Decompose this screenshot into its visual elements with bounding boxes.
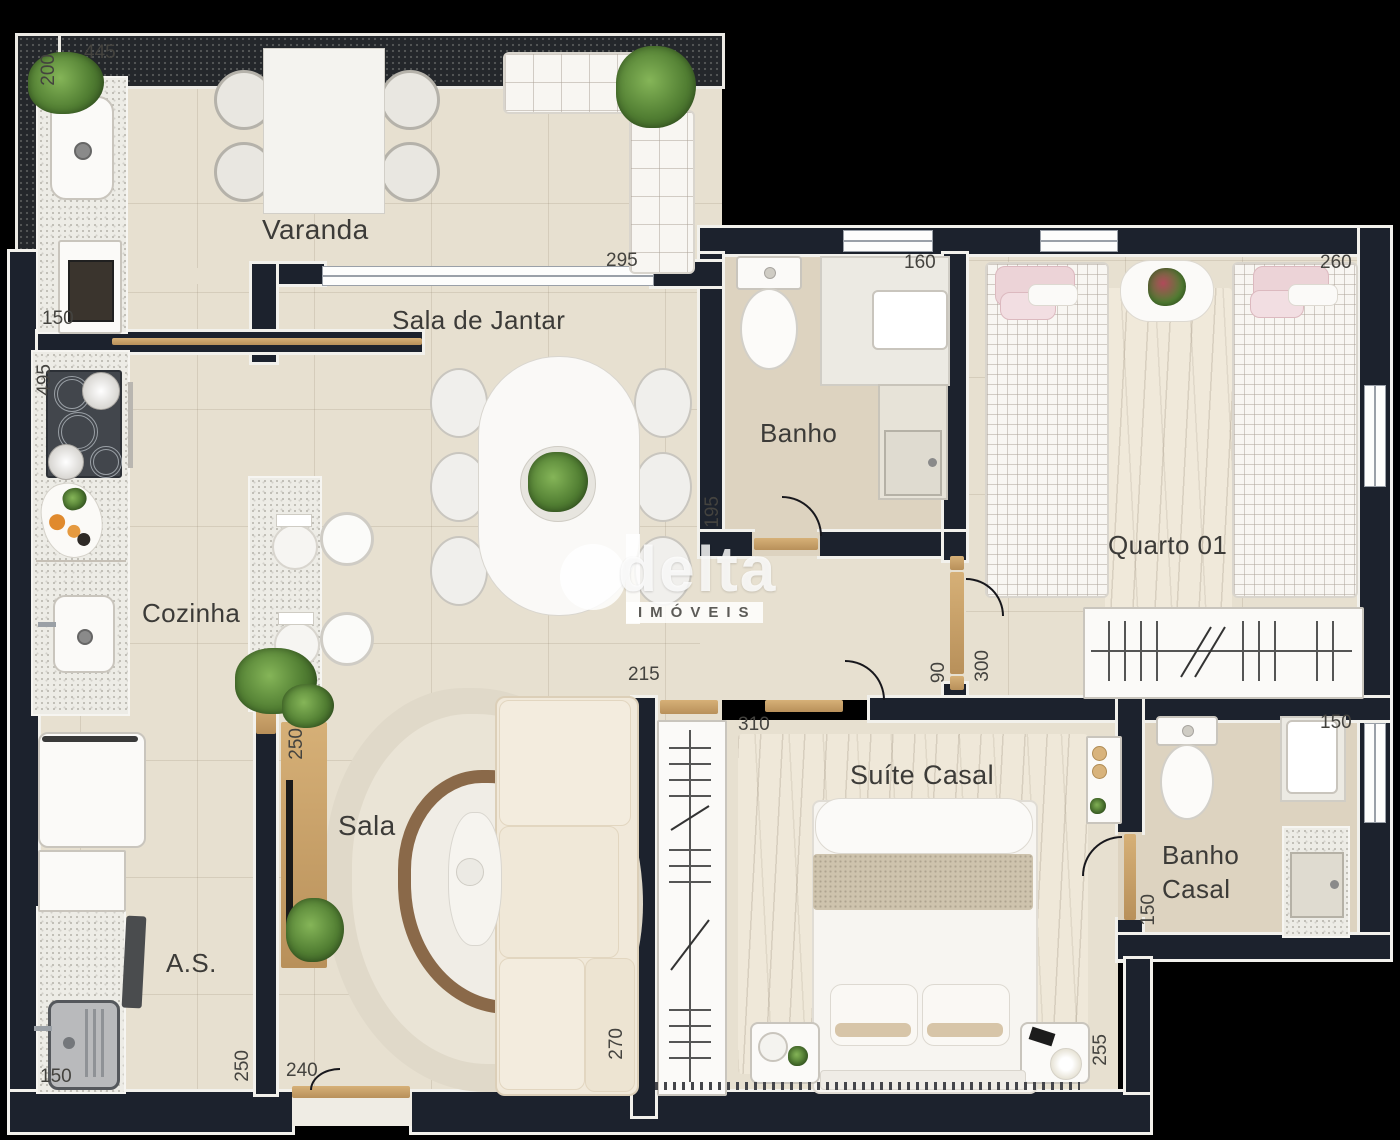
suite-vanity: [1086, 736, 1122, 824]
suite-pillow-stripe: [927, 1023, 1003, 1037]
banho-casal-shower-door: [1290, 852, 1344, 918]
watermark-logo-icon: [560, 544, 626, 610]
varanda-table: [263, 48, 385, 214]
suite-nightstand-left: [750, 1022, 820, 1084]
fruit-dark: [76, 532, 91, 547]
stove-pot: [48, 444, 84, 480]
room-label-cozinha: Cozinha: [142, 598, 240, 629]
gourmet-appliance-door: [68, 260, 114, 322]
banho-casal-toilet-tank: [1156, 716, 1218, 746]
washer-panel: [42, 736, 138, 742]
dim-suite-top: 310: [738, 714, 770, 736]
stove-burner: [90, 446, 122, 478]
gourmet-sink-drain: [74, 142, 92, 160]
sofa-cushion: [499, 826, 619, 958]
dim-hall-width: 90: [928, 662, 950, 683]
banho-casal-wall-bottom: [1118, 935, 1390, 959]
vanity-knob: [1092, 746, 1107, 761]
nightstand-tray: [758, 1032, 788, 1062]
dim-jantar-bottom: 215: [628, 664, 660, 686]
island-stool: [320, 512, 374, 566]
dim-banho-left: 195: [702, 496, 724, 528]
sliding-door-line: [323, 275, 653, 277]
banho-casal-door-leaf: [1124, 834, 1136, 920]
banho-sink: [872, 290, 948, 350]
banho-wall-left: [700, 254, 722, 532]
suite-pillow: [830, 984, 918, 1046]
suite-bed-foot-roll: [815, 798, 1033, 854]
laundry-tank-drain: [63, 1037, 75, 1049]
banho-casal-window-line: [1374, 724, 1376, 822]
kitchen-sink: [53, 595, 115, 673]
island-napkin: [276, 514, 312, 527]
banho-window-line: [844, 240, 932, 242]
fruit-greens: [61, 486, 89, 513]
kitchen-counter-seam: [36, 560, 126, 562]
suite-nightstand-right: [1020, 1022, 1090, 1084]
quarto01-door-jamb-bottom: [950, 676, 964, 690]
dim-kitchen-pass: 150: [42, 308, 74, 330]
quarto01-door-jamb-top: [950, 556, 964, 570]
suite-wardrobe: [657, 720, 727, 1096]
watermark-brand: delta: [618, 532, 777, 606]
vanity-knob: [1092, 764, 1107, 779]
dim-varanda-top: 445: [84, 42, 116, 64]
stove-pot: [82, 372, 120, 410]
varanda-sofa-vertical: [629, 110, 695, 274]
varanda-chair: [380, 70, 440, 130]
quarto01-side-window: [1364, 385, 1386, 487]
dim-varanda-bottom: 295: [606, 250, 638, 272]
sofa-chaise: [585, 958, 635, 1092]
oven-handle: [128, 382, 133, 468]
laundry-cabinet: [38, 850, 126, 912]
quarto01-wardrobe-rail-icon: [1083, 607, 1360, 695]
quarto01-wardrobe: [1083, 607, 1364, 699]
stove: [46, 370, 122, 478]
banho-casal-window: [1364, 723, 1386, 823]
dining-chair: [634, 452, 692, 522]
banho-toilet-tank: [736, 256, 802, 290]
suite-door-leaf: [660, 700, 718, 714]
quarto01-rug: [1105, 288, 1232, 650]
dim-banho-casal-top: 150: [1320, 712, 1352, 734]
room-label-banho: Banho: [760, 418, 837, 449]
servico-sala-divider: [256, 700, 276, 1094]
shower-handle: [1330, 880, 1339, 889]
quarto01-window: [1040, 230, 1118, 252]
dining-chair: [634, 368, 692, 438]
nightstand-phone: [1029, 1027, 1056, 1047]
kitchen-pass-rail: [112, 338, 422, 345]
sala-coffee-table-knob: [456, 858, 484, 886]
suite-door-threshold: [765, 700, 843, 712]
exterior-wall-bottom-left: [10, 1092, 292, 1132]
quarto01-fold-left: [1028, 284, 1078, 306]
room-label-sala: Sala: [338, 810, 396, 842]
kitchen-faucet: [38, 622, 56, 627]
dim-banho-top: 160: [904, 252, 936, 274]
nightstand-flower: [1050, 1048, 1082, 1080]
toilet-button: [1182, 725, 1194, 737]
room-label-banho-casal: Banho Casal: [1162, 838, 1239, 906]
island-napkin: [278, 612, 314, 625]
dim-varanda-left: 200: [38, 54, 60, 86]
suite-pillow-stripe: [835, 1023, 911, 1037]
quarto01-side-window-line: [1374, 386, 1376, 486]
fruit-orange: [48, 513, 67, 532]
room-label-banho-casal-line1: Banho: [1162, 838, 1239, 872]
varanda-chair: [380, 142, 440, 202]
exterior-wall-bottom-right: [412, 1092, 1150, 1132]
laundry-faucet: [34, 1026, 52, 1031]
sofa-cushion: [499, 700, 631, 826]
nightstand-plant: [788, 1046, 808, 1066]
laundry-tank-ridges: [85, 1009, 109, 1077]
toilet-button: [764, 267, 776, 279]
banho-shower-door: [884, 430, 942, 496]
watermark-subtitle: IMÓVEIS: [626, 602, 763, 623]
room-label-quarto01: Quarto 01: [1108, 530, 1227, 561]
floor-plan: Varanda Sala de Jantar Banho Quarto 01 C…: [0, 0, 1400, 1140]
island-stool: [320, 612, 374, 666]
quarto01-door-leaf: [950, 572, 964, 674]
banho-casal-toilet-bowl: [1160, 744, 1214, 820]
shower-handle: [928, 458, 937, 467]
kitchen-sink-drain: [77, 629, 93, 645]
room-label-sala-de-jantar: Sala de Jantar: [392, 305, 565, 336]
island-plate: [272, 524, 318, 570]
dim-quarto01-top: 260: [1320, 252, 1352, 274]
dim-cozinha-left: 495: [34, 364, 56, 396]
dim-sala-bottom: 240: [286, 1060, 318, 1082]
banho-window: [843, 230, 933, 252]
banho-toilet-bowl: [740, 288, 798, 370]
dim-banho-casal-left: 150: [1138, 894, 1160, 926]
dim-servico-right: 250: [232, 1050, 254, 1082]
suite-wardrobe-rail-icon: [657, 720, 723, 1092]
suite-baseboard-ticks: [655, 1082, 1080, 1090]
dim-suite-right: 255: [1090, 1034, 1112, 1066]
suite-bed-knit-band: [813, 854, 1033, 910]
suite-wall-right-notch: [1126, 959, 1150, 1092]
quarto01-fold-right: [1288, 284, 1338, 306]
dim-sala-console: 250: [286, 728, 308, 760]
watermark: delta IMÓVEIS: [560, 534, 810, 634]
dim-sala-right: 270: [606, 1028, 628, 1060]
balcony-sliding-door: [322, 266, 654, 286]
washer: [38, 732, 146, 848]
room-label-suite-casal: Suíte Casal: [850, 760, 994, 791]
dim-quarto01-entry: 300: [972, 650, 994, 682]
room-label-banho-casal-line2: Casal: [1162, 872, 1239, 906]
room-label-varanda: Varanda: [262, 214, 369, 246]
exterior-wall-right: [1360, 228, 1390, 959]
quarto01-window-line: [1041, 240, 1117, 242]
dim-servico-bottom: 150: [40, 1066, 72, 1088]
sofa-cushion: [499, 958, 585, 1090]
suite-pillow: [922, 984, 1010, 1046]
vanity-plant: [1090, 798, 1106, 814]
room-label-as: A.S.: [166, 948, 217, 979]
